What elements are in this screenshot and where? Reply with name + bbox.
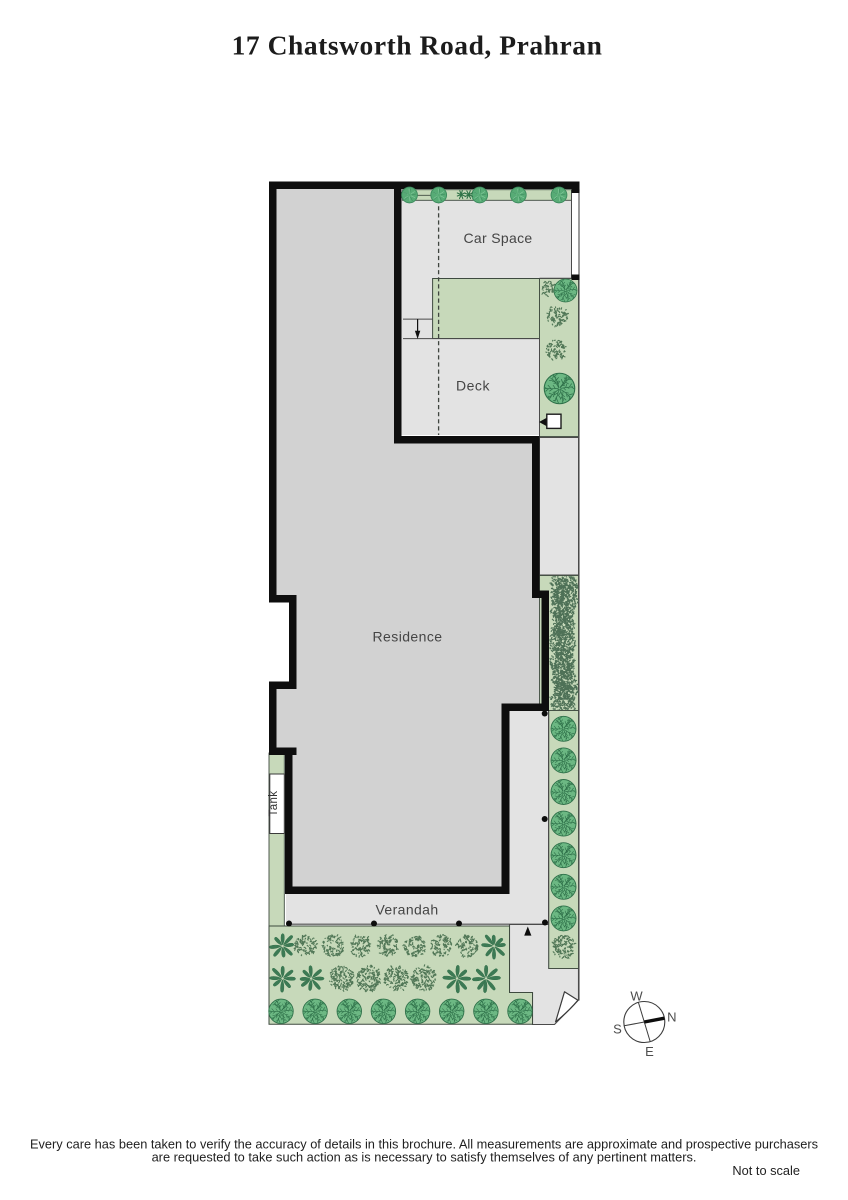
svg-text:Deck: Deck — [456, 378, 490, 394]
svg-text:W: W — [630, 989, 643, 1004]
svg-text:E: E — [645, 1044, 654, 1059]
svg-text:Not to scale: Not to scale — [732, 1163, 800, 1178]
svg-text:Verandah: Verandah — [375, 902, 438, 918]
svg-text:S: S — [613, 1022, 622, 1037]
svg-text:Residence: Residence — [373, 629, 443, 645]
svg-text:17 Chatsworth Road, Prahran: 17 Chatsworth Road, Prahran — [232, 30, 603, 61]
svg-text:are requested to take such act: are requested to take such action as is … — [152, 1150, 697, 1165]
svg-text:Tank: Tank — [268, 791, 280, 817]
svg-text:Car Space: Car Space — [463, 230, 532, 246]
svg-text:N: N — [667, 1010, 676, 1025]
